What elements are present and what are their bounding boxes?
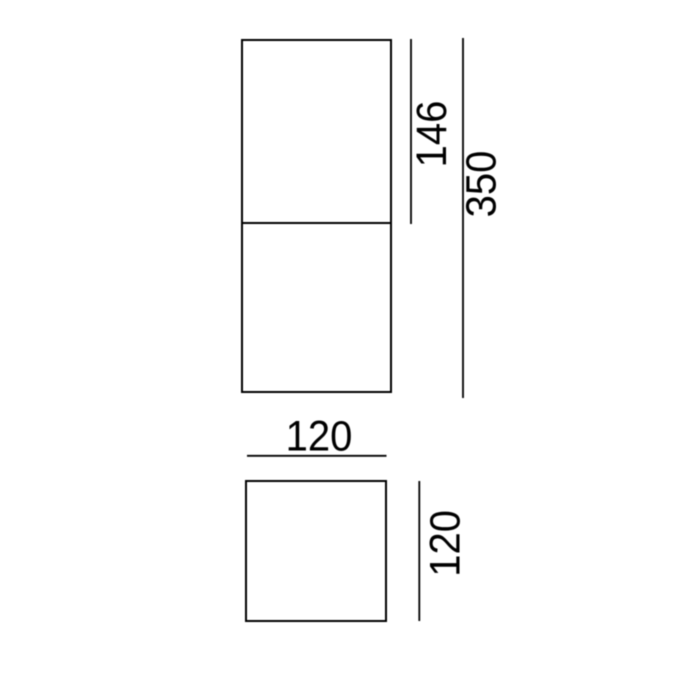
svg-text:350: 350 [457,151,504,218]
svg-text:120: 120 [421,510,468,577]
svg-text:120: 120 [286,412,353,459]
svg-text:146: 146 [408,101,455,168]
